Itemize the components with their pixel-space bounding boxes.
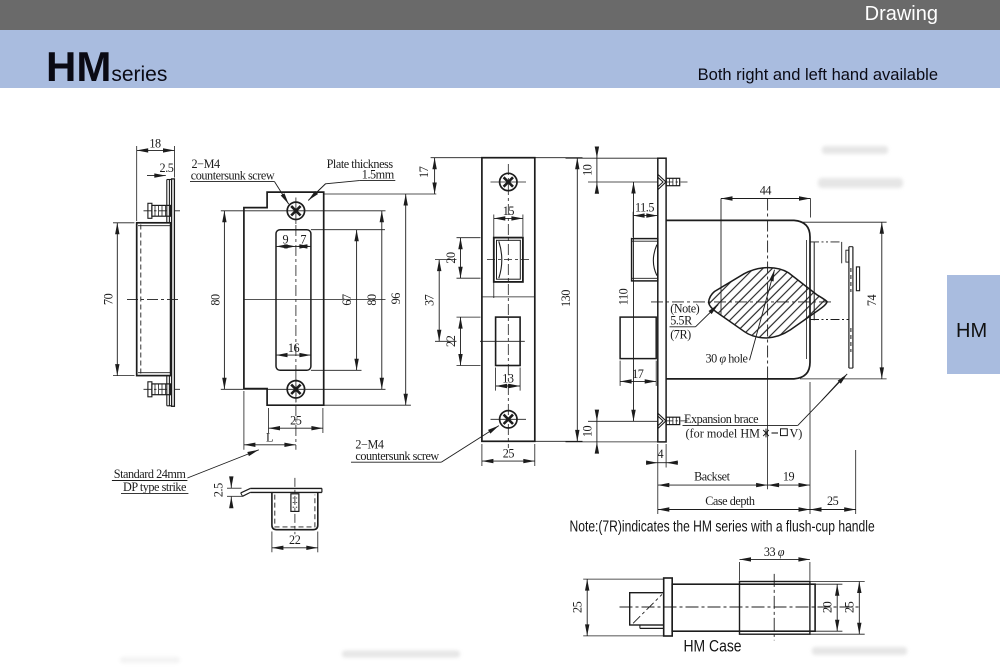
svg-text:110: 110	[616, 288, 630, 305]
svg-text:5.5R: 5.5R	[670, 314, 693, 328]
svg-text:4: 4	[657, 447, 663, 461]
svg-text:30 φ hole: 30 φ hole	[706, 352, 748, 366]
svg-text:20: 20	[820, 601, 834, 613]
svg-text:16: 16	[288, 341, 300, 355]
svg-text:80: 80	[209, 294, 223, 306]
svg-text:DP type strike: DP type strike	[123, 480, 186, 494]
svg-text:44: 44	[760, 184, 772, 198]
svg-text:74: 74	[865, 295, 879, 307]
svg-text:25: 25	[827, 494, 839, 508]
svg-text:25: 25	[570, 601, 584, 613]
svg-text:2.5: 2.5	[160, 161, 174, 175]
svg-text:(for model HM: (for model HM	[686, 426, 761, 440]
svg-text:countersunk screw: countersunk screw	[191, 168, 275, 182]
svg-text:96: 96	[389, 293, 403, 305]
svg-text:20: 20	[444, 252, 458, 264]
svg-text:25: 25	[503, 447, 515, 461]
svg-text:L: L	[266, 430, 273, 444]
svg-text:13: 13	[502, 371, 514, 385]
svg-text:7: 7	[300, 232, 306, 246]
svg-text:Expansion brace: Expansion brace	[684, 412, 758, 426]
svg-text:Backset: Backset	[694, 470, 730, 484]
svg-text:Note:(7R)indicates the HM seri: Note:(7R)indicates the HM series with a …	[570, 517, 875, 535]
svg-text:V): V)	[790, 426, 803, 440]
svg-text:22: 22	[289, 533, 301, 547]
svg-text:15: 15	[503, 204, 515, 218]
svg-text:10: 10	[580, 164, 594, 176]
svg-text:80: 80	[365, 294, 379, 306]
svg-text:25: 25	[842, 601, 856, 613]
svg-text:HM Case: HM Case	[684, 637, 742, 656]
svg-text:17: 17	[632, 367, 644, 381]
svg-text:Case depth: Case depth	[705, 494, 755, 508]
svg-text:130: 130	[559, 290, 573, 307]
svg-text:37: 37	[422, 294, 436, 306]
svg-text:17: 17	[417, 166, 431, 178]
svg-text:9: 9	[282, 232, 288, 246]
svg-text:25: 25	[290, 414, 302, 428]
svg-text:(7R): (7R)	[670, 328, 691, 342]
svg-text:countersunk screw: countersunk screw	[355, 449, 439, 463]
svg-text:1.5mm: 1.5mm	[362, 168, 395, 182]
svg-text:67: 67	[340, 294, 354, 306]
svg-text:33 φ: 33 φ	[764, 545, 785, 559]
svg-text:18: 18	[149, 137, 161, 151]
svg-text:70: 70	[102, 293, 116, 305]
svg-text:11.5: 11.5	[635, 201, 654, 215]
svg-text:2.5: 2.5	[211, 483, 225, 497]
svg-text:Standard 24mm: Standard 24mm	[114, 467, 187, 481]
svg-text:19: 19	[783, 470, 795, 484]
svg-text:10: 10	[580, 426, 594, 438]
